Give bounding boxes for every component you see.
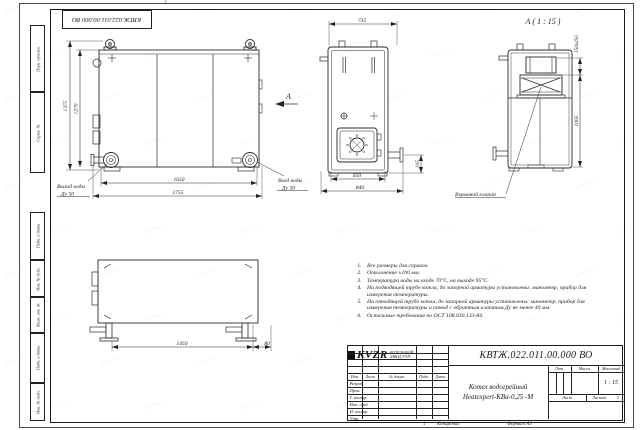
note-item: Отклонение ±100 мм. (363, 270, 592, 276)
note-item: На подводящей трубе котла, до запорной а… (363, 285, 592, 298)
view-a-title: А ( 1 : 15 ) (525, 17, 561, 26)
dim-top-1450: 1450 (177, 340, 188, 347)
dim-viewa-150x250: 150х250 (575, 35, 580, 53)
explosion-valve-label: Взрывной клапан (455, 191, 496, 198)
dim-front-1650: 1650 (174, 177, 185, 183)
tb-scale-value: 1 : 15 (598, 372, 624, 394)
front-view (91, 40, 262, 172)
dim-front-1270: 1270 (74, 103, 80, 114)
tb-col-izm: Изм. (348, 373, 362, 380)
tb-col-list: Лист (362, 373, 378, 380)
tb-row-tkontr: Т. контр. (350, 395, 368, 400)
tb-col-data: Дата (432, 373, 448, 380)
dim-front-1755: 1755 (173, 190, 184, 196)
dim-front-1375: 1375 (63, 100, 69, 111)
product-name: Котел водогрейный Heatexpert-КВа-0,25 -М (448, 365, 548, 420)
tb-lit-label: Лит. (548, 365, 571, 372)
view-a (493, 44, 572, 171)
tb-sheets-label: Листов (586, 394, 612, 401)
dim-side-735: 735 (358, 18, 367, 24)
product-name-line1: Котел водогрейный (469, 383, 528, 392)
tb-line (563, 372, 564, 394)
tb-line (548, 401, 624, 402)
tb-sheets-value: 1 (612, 394, 624, 401)
note-item: Все размеры для справок. (363, 263, 592, 269)
dim-side-105: 105 (415, 160, 421, 169)
side-view (320, 41, 403, 176)
tb-sheet-label: Лист (548, 394, 586, 401)
tb-row-prov: Пров. (350, 388, 361, 393)
top-view (90, 260, 258, 341)
notes-list: Все размеры для справок. Отклонение ±100… (349, 263, 592, 320)
drawing-sheet: kvzr.rukvzr.rukvzr.rukvzr.rukvzr.rukvzr.… (0, 0, 644, 430)
tb-col-podp: Подп. (416, 373, 432, 380)
product-name-line2: Heatexpert-КВа-0,25 -М (463, 393, 533, 402)
tb-row-nkontr: Н. контр. (350, 409, 369, 414)
view-a-dimensions (455, 58, 583, 198)
bottom-mark: 1 (423, 422, 426, 427)
tb-line (348, 366, 448, 367)
tb-row-utv: Утв. (350, 416, 360, 421)
tb-mass-label: Масса (571, 365, 598, 372)
outlet-label-line2: Ду 50 (60, 192, 74, 198)
title-block-doc-number: КВТЖ.022.011.00.000 ВО (448, 346, 624, 365)
tb-line (348, 415, 448, 416)
tb-line (348, 387, 448, 388)
front-view-dimensions (57, 41, 308, 199)
inlet-label-line1: Вход воды (278, 177, 303, 184)
tb-row-razrab: Разраб. (350, 381, 365, 386)
dim-viewa-1005: 1005 (574, 115, 580, 126)
dim-top-80: 80 (264, 341, 270, 347)
outlet-label-line1: Выход воды (57, 183, 85, 190)
view-arrow-letter: А (285, 92, 291, 101)
tb-line (556, 372, 557, 394)
dim-side-840: 840 (356, 184, 365, 191)
tb-row-nachotd: Нач. отд. (350, 402, 369, 407)
inlet-label-line2: Ду 50 (281, 186, 295, 192)
tb-col-doc: № докум. (378, 373, 416, 380)
tb-scale-label: Масштаб (598, 365, 624, 372)
note-item: Остальные требования по ОСТ 108.030.133-… (363, 313, 592, 319)
note-item: На отводящей трубе котла, до запорной ар… (363, 299, 592, 312)
title-block: КВТЖ.022.011.00.000 ВО Изм. Лист № докум… (347, 345, 623, 421)
tb-line (548, 365, 549, 419)
company-logo: KVZR КОТЕЛЬНЫЙ ЗАВОД РЭП (348, 346, 421, 364)
format-label: Формат А3 (507, 422, 532, 427)
note-item: Температура воды на входе 70°С, на выход… (363, 278, 592, 284)
tb-line (348, 359, 448, 360)
tb-line (348, 353, 448, 354)
dim-side-650: 650 (353, 173, 362, 179)
copied-label: Копировал (437, 422, 459, 427)
